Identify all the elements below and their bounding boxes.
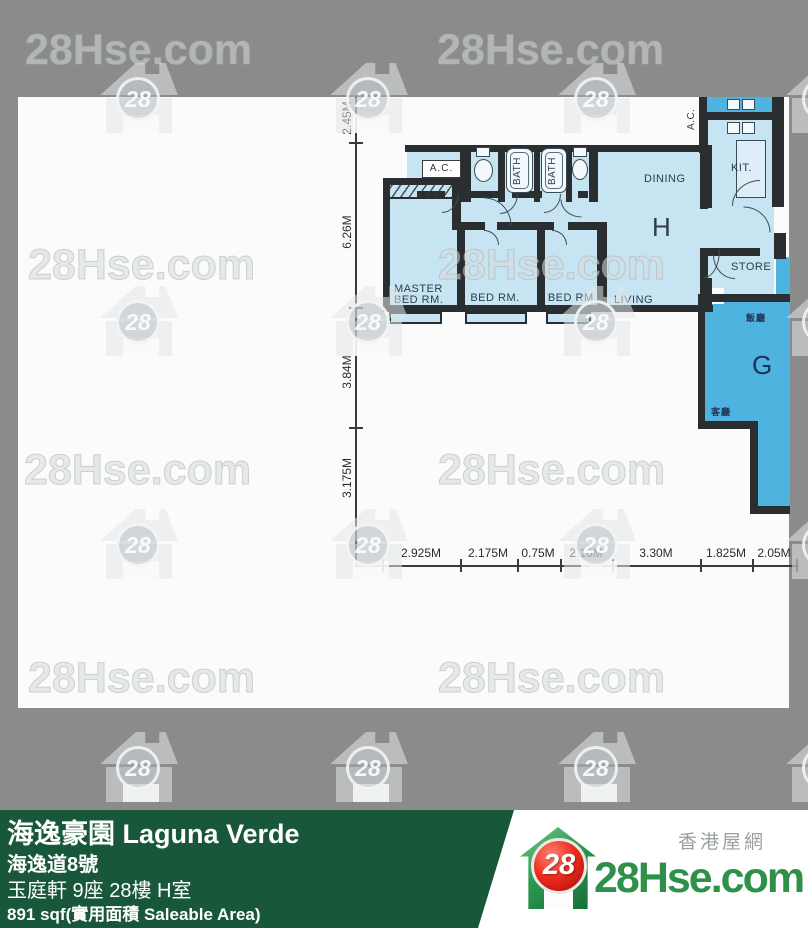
label-dining: DINING [644, 173, 686, 185]
logo-28-badge[interactable]: 28 [531, 838, 587, 894]
unit-g-balcony-fill [754, 426, 790, 512]
watermark-house-icon: 28 [330, 63, 408, 133]
dim-tick [460, 559, 462, 572]
watermark-house-icon: 28 [100, 509, 178, 579]
label-unit-g: G [752, 350, 773, 381]
property-area: 891 sqf(實用面積 Saleable Area) [7, 900, 261, 925]
watermark-text: 28Hse.com [28, 241, 255, 290]
watermark-house-icon: 28 [558, 509, 636, 579]
wall [383, 305, 713, 312]
dim-tick [752, 559, 754, 572]
watermark-house-icon: 28 [100, 63, 178, 133]
watermark-house-icon: 28 [100, 286, 178, 356]
wall [698, 302, 705, 428]
property-unit: 玉庭軒 9座 28樓 H室 [7, 874, 191, 903]
label-g-living: 客廳 [711, 405, 731, 418]
wall [589, 145, 598, 202]
toilet-cistern [573, 147, 587, 157]
bay-window [465, 312, 527, 324]
watermark-house-icon: 28 [786, 732, 808, 802]
wall [452, 222, 485, 230]
dim-tick [517, 559, 519, 572]
watermark-text: 28Hse.com [438, 446, 665, 495]
wall [774, 233, 786, 259]
outside-patch [378, 140, 407, 180]
logo-site-name[interactable]: 28Hse.com [594, 854, 803, 903]
wall [750, 506, 790, 514]
ac-box: A.C. [422, 160, 461, 178]
screenshot-canvas: A.C. MASTER BED RM. BED RM. BED RM. LIVI… [0, 0, 808, 928]
watermark-house-icon: 28 [786, 286, 808, 356]
watermark-house-icon: 28 [558, 63, 636, 133]
toilet-bowl [572, 159, 588, 180]
wall [457, 191, 502, 198]
wall [700, 112, 783, 120]
stove-burner [742, 122, 755, 134]
label-kitchen: KIT. [731, 162, 752, 174]
watermark-text: 28Hse.com [438, 241, 665, 290]
dim-label-left-3: 3.175M [340, 448, 354, 508]
property-info-bar: 海逸豪園 Laguna Verde 海逸道8號 玉庭軒 9座 28樓 H室 89… [0, 810, 514, 928]
watermark-house-icon: 28 [330, 732, 408, 802]
property-title: 海逸豪園 Laguna Verde [7, 812, 300, 851]
watermark-house-icon: 28 [786, 63, 808, 133]
watermark-house-icon: 28 [786, 509, 808, 579]
watermark-text: 28Hse.com [24, 446, 251, 495]
wall [698, 294, 790, 302]
stove-burner [727, 122, 740, 134]
toilet-cistern [476, 147, 490, 157]
label-g-dining: 飯廳 [746, 311, 766, 324]
watermark-house-icon: 28 [558, 732, 636, 802]
dim-tick [700, 559, 702, 572]
stove-burner [727, 99, 740, 110]
watermark-house-icon: 28 [100, 732, 178, 802]
label-bath-1: BATH [512, 151, 523, 191]
wall [772, 97, 784, 207]
label-ac-right: A.C. [686, 100, 697, 138]
label-unit-h: H [652, 212, 672, 243]
dim-label-left-1: 6.26M [340, 202, 354, 262]
label-bedroom-2: BED RM. [465, 292, 525, 304]
property-address: 海逸道8號 [7, 848, 98, 877]
watermark-text: 28Hse.com [28, 654, 255, 703]
watermark-text: 28Hse.com [438, 654, 665, 703]
watermark-house-icon: 28 [330, 286, 408, 356]
stove-burner [742, 99, 755, 110]
wall [750, 424, 758, 514]
toilet-bowl [474, 159, 493, 182]
label-bath-2: BATH [547, 151, 558, 191]
wall [700, 119, 708, 209]
watermark-house-icon: 28 [330, 509, 408, 579]
dim-tick [349, 427, 363, 429]
wall [698, 421, 758, 429]
logo-tagline: 香港屋網 [678, 827, 766, 854]
wall [578, 191, 588, 198]
label-store: STORE [731, 261, 771, 273]
watermark-house-icon: 28 [558, 286, 636, 356]
